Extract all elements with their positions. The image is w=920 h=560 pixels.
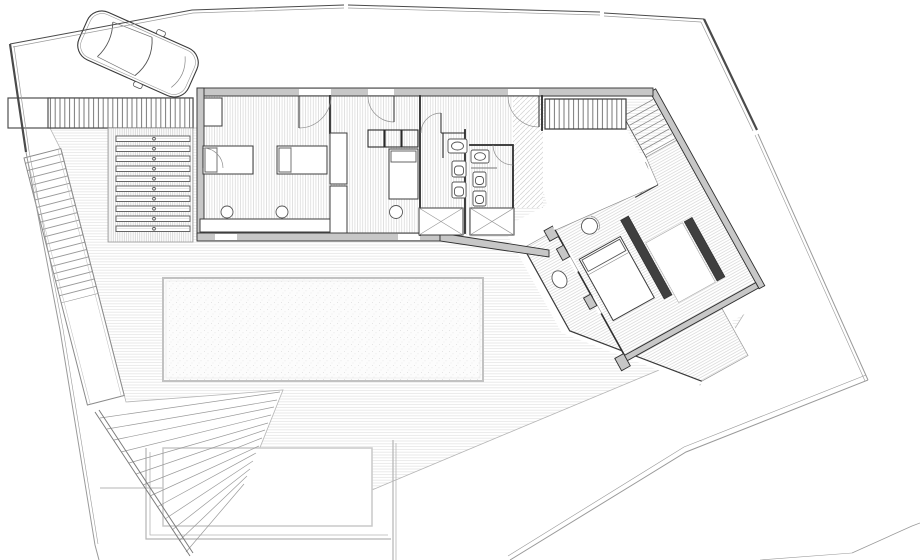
bidet bbox=[452, 182, 466, 198]
pillow bbox=[279, 148, 291, 172]
door-opening bbox=[299, 89, 331, 95]
pillow bbox=[391, 151, 416, 162]
desk bbox=[200, 219, 330, 232]
toilet bbox=[473, 172, 486, 187]
shower bbox=[470, 208, 514, 235]
stool bbox=[390, 206, 403, 219]
north-wall bbox=[197, 88, 653, 96]
window-opening bbox=[215, 234, 237, 240]
road-edge-lines bbox=[760, 523, 920, 560]
single-bed bbox=[277, 146, 327, 174]
window-opening bbox=[398, 234, 420, 240]
entry-opening bbox=[508, 89, 539, 95]
stool bbox=[221, 206, 233, 218]
parked-car bbox=[71, 1, 206, 106]
door-opening bbox=[368, 89, 394, 95]
floor-plan-svg bbox=[0, 0, 920, 560]
bidet bbox=[473, 191, 486, 206]
single-bed bbox=[203, 146, 253, 174]
pillow bbox=[205, 148, 217, 172]
louvered-lightwell bbox=[108, 128, 193, 242]
toilet bbox=[452, 161, 466, 177]
sunken-patio bbox=[100, 440, 396, 560]
wardrobe bbox=[330, 133, 347, 184]
slatted-stair bbox=[545, 99, 626, 129]
single-bed bbox=[389, 149, 418, 199]
wardrobe bbox=[330, 186, 347, 233]
sink bbox=[471, 150, 489, 163]
slatted-grate bbox=[8, 98, 193, 128]
stool bbox=[276, 206, 288, 218]
shower bbox=[419, 208, 463, 235]
closet bbox=[204, 98, 222, 126]
floor-plan-canvas: architectural floor plan — villa site pl… bbox=[0, 0, 920, 560]
sink bbox=[448, 139, 467, 153]
swimming-pool bbox=[163, 278, 483, 381]
